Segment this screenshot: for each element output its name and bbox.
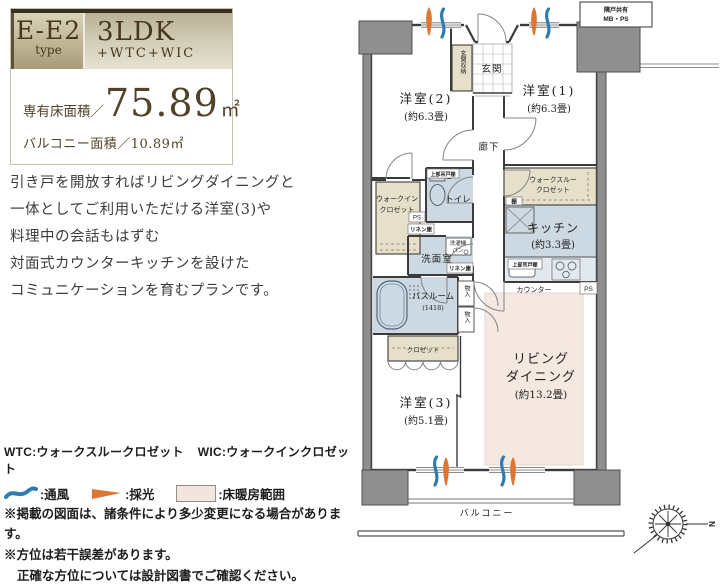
ventilation-icon bbox=[502, 457, 504, 485]
label-western1-size: (約6.3畳) bbox=[527, 102, 571, 115]
linen-tag-1: リネン庫 bbox=[410, 226, 433, 234]
mbps-label-1: 隣戸共有 bbox=[604, 6, 628, 14]
label-toilet: トイレ bbox=[445, 195, 471, 205]
compass-north-label: N bbox=[707, 521, 716, 527]
legend-daylight-label: :採光 bbox=[125, 484, 154, 503]
floorplan: 隣戸共有 MB・PS bbox=[350, 0, 720, 560]
floor-heating-swatch-icon bbox=[176, 485, 216, 502]
compass-rose: N bbox=[634, 507, 716, 554]
legend-note-3: 正確な方位については設計図書でご確認ください。 bbox=[4, 566, 356, 586]
wall-left bbox=[363, 54, 371, 470]
pillar-top-right bbox=[577, 22, 640, 72]
label-balcony: バルコニー bbox=[460, 508, 515, 519]
upper-cabinet-tag-kitchen: 上部吊戸棚 bbox=[512, 261, 537, 268]
plan-title-card: E-E2 type 3LDK +WTC+WIC 専有床面積／ 75.89 ㎡ バ… bbox=[10, 8, 233, 165]
linen-tag-2: リネン庫 bbox=[449, 265, 472, 273]
room-bathroom-floor bbox=[373, 277, 458, 334]
plan-type-cell: E-E2 type bbox=[11, 13, 83, 69]
label-wic-2: クロゼット bbox=[380, 205, 415, 214]
label-living-size: (約13.2畳) bbox=[515, 388, 568, 401]
label-western2-size: (約6.3畳) bbox=[404, 110, 448, 123]
label-western1: 洋室(1) bbox=[523, 83, 576, 98]
description-line: 料理中の会話もはずむ bbox=[10, 224, 355, 251]
ps-tag-2: PS bbox=[584, 286, 593, 293]
mbps-label-2: MB・PS bbox=[603, 16, 629, 23]
plan-area-body: 専有床面積／ 75.89 ㎡ バルコニー面積／10.89㎡ bbox=[11, 69, 232, 164]
legend-note-2: ※方位は若干誤差があります。 bbox=[4, 545, 356, 565]
pillar-top-left bbox=[359, 21, 412, 54]
label-entrance: 玄関 bbox=[481, 63, 502, 75]
exclusive-area-label: 専有床面積／ bbox=[23, 100, 104, 120]
label-wtc-2: クロゼット bbox=[536, 185, 570, 194]
description-line: 対面式カウンターキッチンを設けた bbox=[10, 251, 355, 278]
plan-description: 引き戸を開放すればリビングダイニングと 一体としてご利用いただける洋室(3)や … bbox=[10, 170, 355, 305]
label-hallway: 廊下 bbox=[478, 141, 499, 153]
plan-type-code: E-E2 bbox=[14, 18, 83, 44]
balcony-rail bbox=[358, 531, 624, 536]
exclusive-area-unit: ㎡ bbox=[221, 95, 240, 122]
legend-ventilation: :通風 bbox=[4, 484, 69, 503]
shelf-tag: 棚 bbox=[511, 197, 517, 205]
legend-wtc: WTC:ウォークスルークロゼット bbox=[4, 445, 184, 459]
label-western3: 洋室(3) bbox=[400, 395, 453, 410]
label-washer-1: 洗濯機 bbox=[450, 239, 467, 247]
pillar-bottom-left bbox=[362, 470, 408, 505]
description-line: 一体としてご利用いただける洋室(3)や bbox=[10, 197, 355, 224]
label-wtc-1: ウォークスルー bbox=[529, 176, 577, 184]
balcony-area-line: バルコニー面積／10.89㎡ bbox=[23, 133, 222, 152]
label-wic-1: ウォークイン bbox=[376, 195, 418, 203]
exclusive-area-value: 75.89 bbox=[105, 81, 219, 125]
ps-tag-1: PS bbox=[413, 216, 421, 222]
label-washer-2: パン bbox=[452, 247, 464, 254]
upper-cabinet-tag-toilet: 上部吊戸棚 bbox=[430, 171, 455, 178]
plan-layout-value: 3LDK bbox=[97, 19, 232, 46]
mbps-box bbox=[580, 2, 652, 27]
label-living-2: ダイニング bbox=[506, 370, 576, 385]
label-storage-2: 物入 bbox=[463, 310, 470, 323]
label-entrance-storage: 玄関収納 bbox=[459, 49, 466, 75]
label-living-1: リビング bbox=[513, 352, 569, 367]
plan-layout-cell: 3LDK +WTC+WIC bbox=[85, 13, 232, 69]
entrance-recess-mask bbox=[464, 23, 520, 28]
label-bathroom-size: (1418) bbox=[422, 304, 444, 312]
daylight-icon bbox=[91, 486, 123, 501]
label-closet: クロゼット bbox=[407, 345, 440, 354]
legend-symbols: :通風 :採光 :床暖房範囲 bbox=[4, 484, 356, 503]
exclusive-area-line: 専有床面積／ 75.89 ㎡ bbox=[23, 81, 222, 125]
label-washroom: 洗面室 bbox=[421, 253, 453, 265]
label-storage-1: 物入 bbox=[463, 284, 470, 297]
plan-type-word: type bbox=[14, 44, 83, 57]
legend-floor-heating: :床暖房範囲 bbox=[176, 484, 285, 503]
pillar-bottom-right bbox=[574, 470, 620, 505]
ventilation-icon bbox=[442, 9, 444, 37]
label-western3-size: (約5.1畳) bbox=[404, 414, 448, 427]
label-western2: 洋室(2) bbox=[400, 91, 453, 106]
legend-daylight: :採光 bbox=[91, 484, 154, 503]
wall-right bbox=[597, 72, 606, 470]
plan-layout-sub: +WTC+WIC bbox=[97, 46, 232, 61]
legend-note-1: ※掲載の図面は、諸条件により多少変更になる場合があります。 bbox=[4, 504, 356, 544]
description-line: コミュニケーションを育むプランです。 bbox=[10, 278, 355, 305]
legend-ventilation-label: :通風 bbox=[40, 484, 69, 503]
description-line: 引き戸を開放すればリビングダイニングと bbox=[10, 170, 355, 197]
label-kitchen: キッチン bbox=[527, 221, 579, 235]
label-kitchen-size: (約3.3畳) bbox=[531, 238, 575, 251]
plan-title-header: E-E2 type 3LDK +WTC+WIC bbox=[11, 9, 232, 69]
ventilation-icon bbox=[547, 9, 549, 37]
legend-floor-heating-label: :床暖房範囲 bbox=[218, 484, 285, 503]
plan-legend: WTC:ウォークスルークロゼットWIC:ウォークインクロゼット :通風 :採光 … bbox=[4, 443, 356, 586]
label-bathroom: バスルーム bbox=[412, 292, 454, 302]
ventilation-icon bbox=[4, 486, 38, 502]
label-counter: カウンター bbox=[517, 285, 552, 294]
legend-abbreviations: WTC:ウォークスルークロゼットWIC:ウォークインクロゼット bbox=[4, 443, 356, 477]
ventilation-icon bbox=[435, 457, 437, 485]
